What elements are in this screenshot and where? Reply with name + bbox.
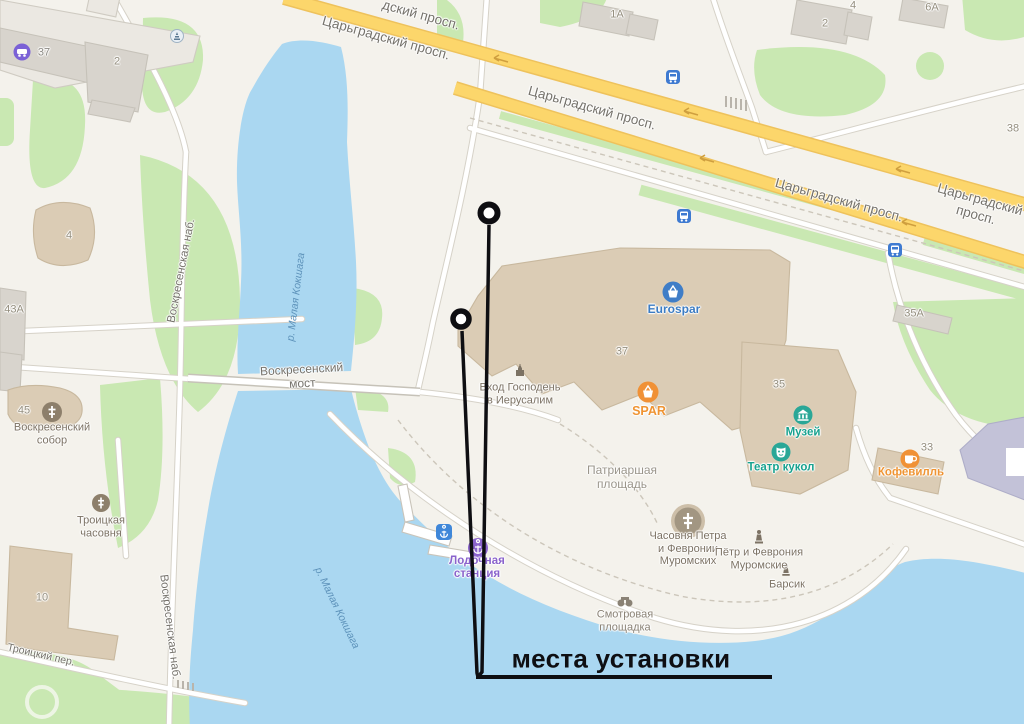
annotation-overlay bbox=[0, 0, 1024, 724]
installation-marker-1[interactable] bbox=[481, 205, 498, 222]
installation-marker-2[interactable] bbox=[453, 311, 469, 327]
annotation-text: места установки bbox=[512, 644, 731, 675]
map-canvas[interactable]: дский просп. Царьградский просп. Царьгра… bbox=[0, 0, 1024, 724]
annotation-lines bbox=[462, 225, 772, 677]
